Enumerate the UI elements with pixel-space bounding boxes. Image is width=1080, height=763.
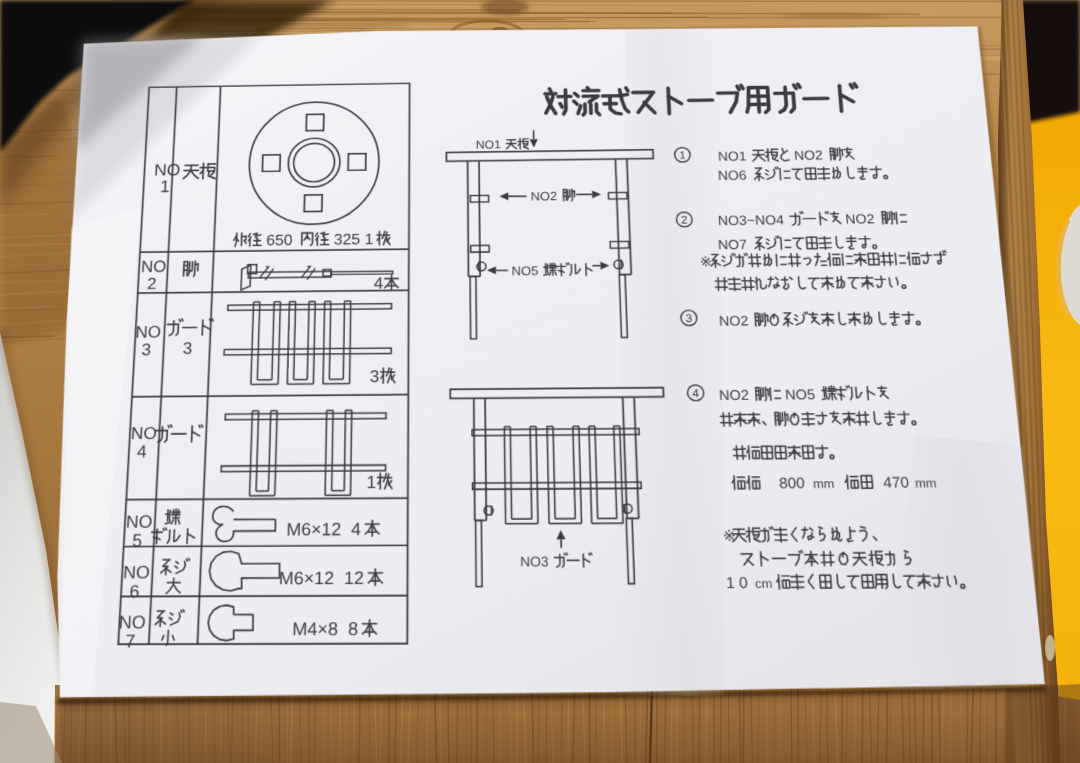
- svg-text:3: 3: [685, 313, 692, 325]
- svg-text:NO: NO: [130, 424, 157, 443]
- svg-text:NO6: NO6: [718, 168, 751, 183]
- svg-text:NO5: NO5: [511, 264, 542, 278]
- svg-text:mm: mm: [915, 477, 938, 491]
- svg-text:NO1: NO1: [718, 149, 751, 164]
- svg-text:NO3~NO4: NO3~NO4: [718, 213, 789, 229]
- svg-text:NO: NO: [125, 513, 152, 533]
- svg-text:6: 6: [129, 582, 140, 602]
- svg-text:800: 800: [779, 474, 806, 492]
- svg-text:NO1: NO1: [476, 139, 505, 152]
- svg-text:4: 4: [137, 443, 148, 462]
- svg-text:NO7: NO7: [718, 237, 752, 252]
- svg-text:※: ※: [700, 255, 713, 270]
- svg-text:470: 470: [883, 474, 910, 492]
- svg-text:mm: mm: [813, 478, 835, 492]
- svg-text:NO3: NO3: [520, 554, 552, 570]
- svg-text:※: ※: [723, 528, 736, 545]
- svg-text:3: 3: [141, 341, 151, 360]
- svg-text:325 1: 325 1: [329, 232, 373, 249]
- svg-text:NO: NO: [135, 323, 161, 342]
- svg-text:NO2: NO2: [790, 148, 827, 163]
- svg-text:NO2: NO2: [719, 313, 753, 329]
- svg-text:2: 2: [147, 275, 157, 293]
- svg-text:10: 10: [726, 574, 753, 592]
- svg-text:1: 1: [366, 473, 376, 493]
- svg-text:NO: NO: [118, 613, 146, 633]
- svg-text:5: 5: [132, 531, 143, 551]
- svg-text:650: 650: [262, 232, 298, 249]
- svg-text:4: 4: [374, 275, 384, 293]
- svg-text:NO: NO: [123, 563, 151, 583]
- svg-text:NO2: NO2: [841, 212, 879, 227]
- svg-text:M4×8 8: M4×8 8: [292, 619, 358, 640]
- svg-text:1: 1: [679, 150, 686, 161]
- svg-text:7: 7: [125, 632, 136, 653]
- svg-text:3: 3: [370, 368, 380, 387]
- svg-text:cm: cm: [755, 577, 773, 591]
- svg-text:NO: NO: [141, 258, 167, 276]
- svg-text:4: 4: [692, 388, 699, 400]
- svg-text:NO2: NO2: [531, 190, 561, 204]
- svg-text:M6×12 4: M6×12 4: [286, 520, 361, 540]
- svg-text:2: 2: [681, 215, 688, 227]
- svg-text:NO5: NO5: [781, 387, 820, 403]
- svg-text:M6×12 12: M6×12 12: [279, 569, 364, 589]
- svg-text:3: 3: [182, 340, 192, 359]
- svg-text:NO2: NO2: [719, 387, 754, 403]
- svg-text:1: 1: [160, 178, 171, 197]
